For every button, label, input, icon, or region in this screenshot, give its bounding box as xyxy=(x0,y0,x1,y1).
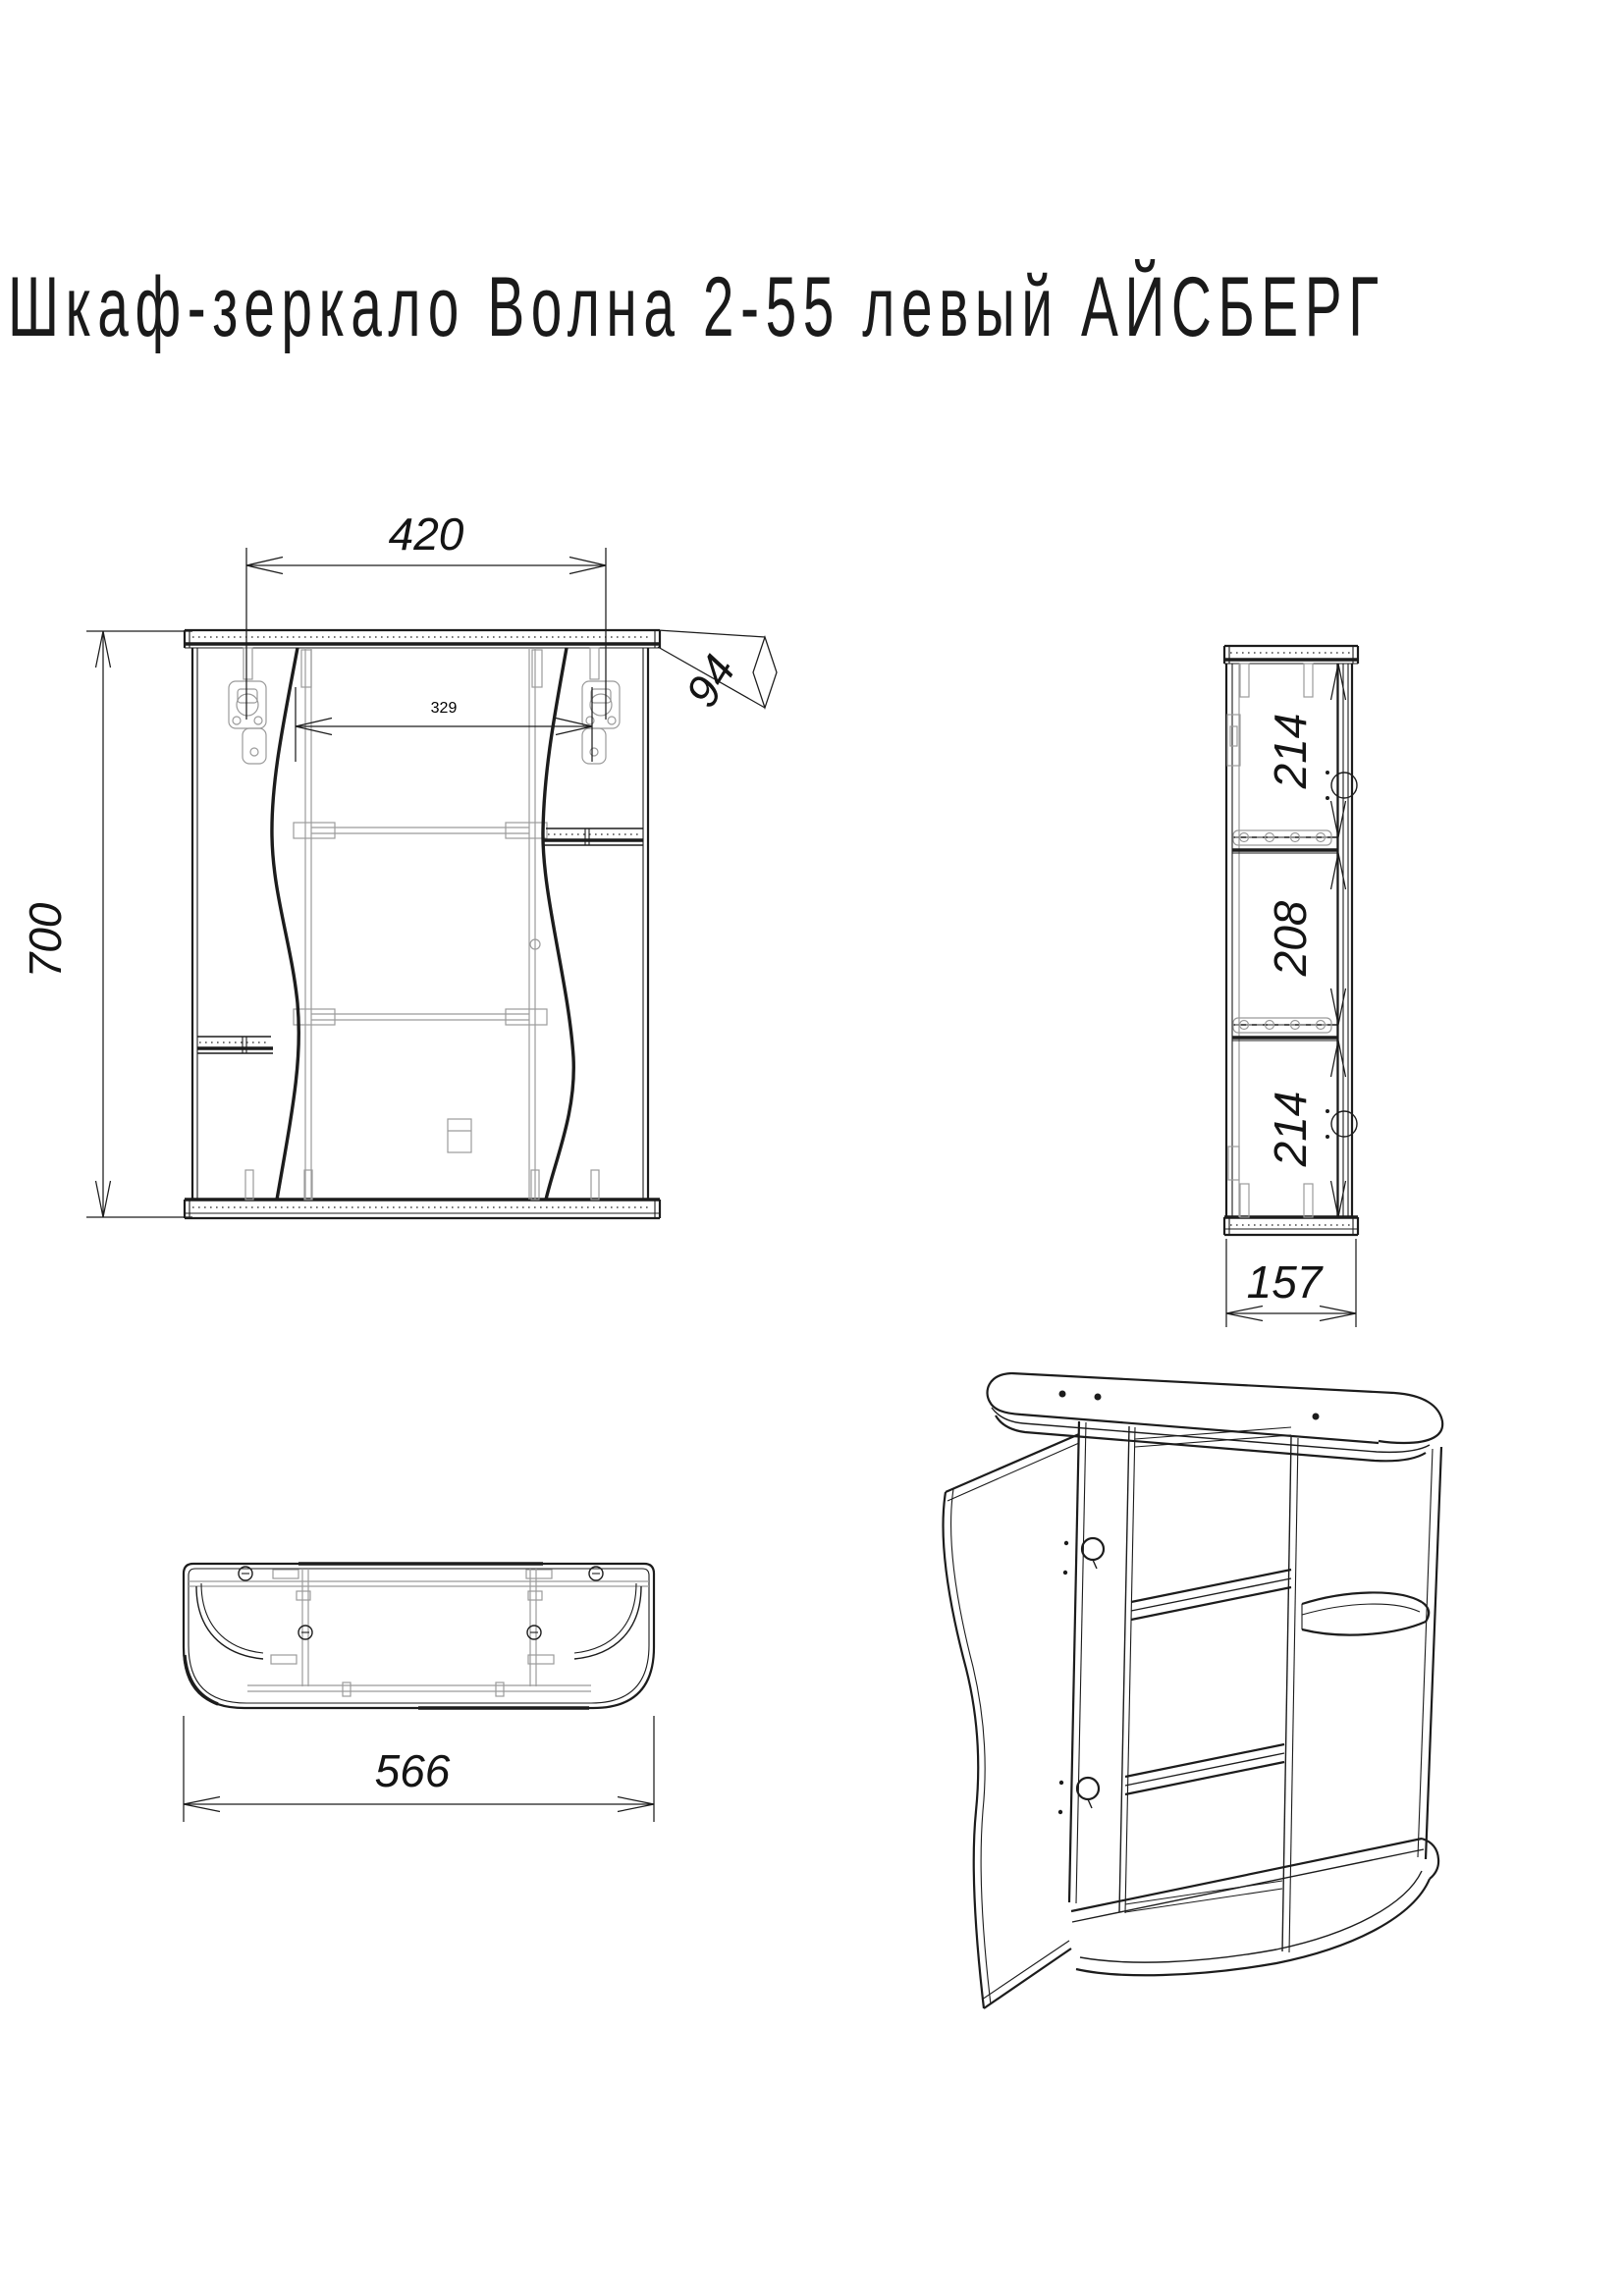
dim-front-top-depth-94: 94 xyxy=(658,630,777,716)
front-top-panel xyxy=(185,630,660,648)
bottom-hidden-structure xyxy=(189,1569,649,1696)
front-carcass-sides xyxy=(192,648,648,1200)
front-view: 420 329 700 94 xyxy=(20,508,777,1218)
dim-side-depth-157: 157 xyxy=(1226,1239,1356,1327)
dim-front-width-420: 420 xyxy=(246,508,606,720)
persp-side-shelf xyxy=(1302,1592,1429,1634)
dim-label-700: 700 xyxy=(20,902,71,978)
dim-bottom-width-566: 566 xyxy=(184,1716,654,1822)
side-bottom-panel xyxy=(1224,1217,1358,1235)
dim-label-214-bottom: 214 xyxy=(1265,1092,1316,1168)
front-door-wave-edges xyxy=(272,648,573,1200)
dim-label-329: 329 xyxy=(431,700,458,717)
side-view: 214 208 214 157 xyxy=(1224,646,1358,1327)
front-hanger-bracket-left xyxy=(229,681,266,764)
dim-label-157: 157 xyxy=(1247,1256,1324,1308)
front-hidden-structure xyxy=(244,648,599,1200)
dim-label-214-top: 214 xyxy=(1265,714,1316,790)
perspective-view xyxy=(944,1373,1443,2008)
side-top-panel xyxy=(1224,646,1358,664)
dim-label-566: 566 xyxy=(375,1745,451,1796)
front-side-shelf-left xyxy=(197,1037,273,1053)
dim-label-208: 208 xyxy=(1265,900,1316,977)
front-side-shelf-right xyxy=(543,828,643,845)
dim-label-94: 94 xyxy=(676,646,745,716)
bottom-panel-outline xyxy=(184,1564,654,1708)
bottom-cam-fittings xyxy=(239,1567,603,1639)
bottom-view: 566 xyxy=(184,1564,654,1822)
persp-top-panel xyxy=(988,1373,1443,1461)
dim-front-width-329: 329 xyxy=(296,687,592,762)
drawing-canvas: 420 329 700 94 xyxy=(0,0,1624,2296)
dim-label-420: 420 xyxy=(389,508,464,560)
persp-center-shelves xyxy=(1125,1570,1291,1794)
dim-side-sections: 214 208 214 xyxy=(1265,664,1346,1217)
front-bottom-panel xyxy=(185,1200,660,1218)
front-hanger-bracket-right xyxy=(582,681,620,764)
bottom-corner-shelves xyxy=(196,1583,641,1659)
dim-front-height-700: 700 xyxy=(20,631,192,1217)
drawing-page: Шкаф-зеркало Волна 2-55 левый АЙСБЕРГ xyxy=(0,0,1624,2296)
